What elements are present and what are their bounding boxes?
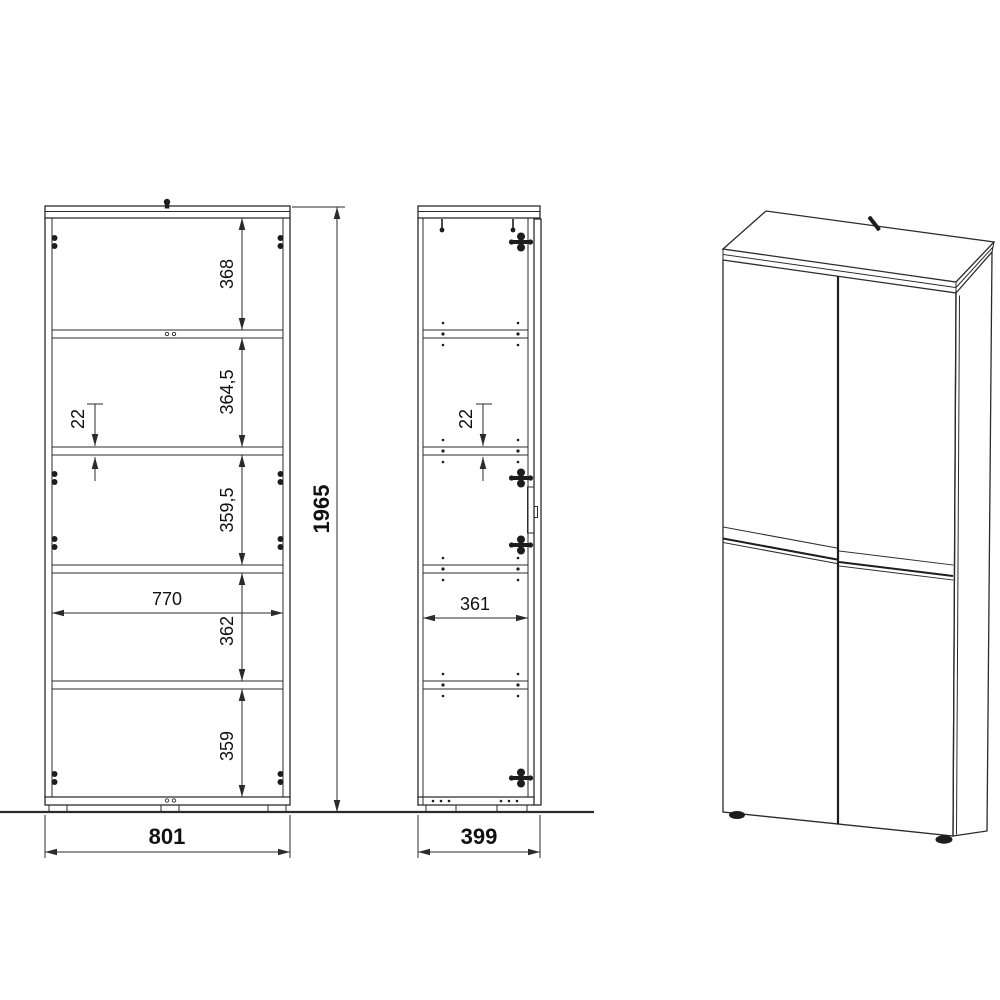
top-panel-thickness-edges: [723, 242, 994, 293]
side-screw-dots: [432, 322, 520, 803]
side-view: 22 361 399: [418, 206, 541, 858]
shelf: [423, 681, 528, 689]
dim-label-compartment-3: 359,5: [217, 487, 237, 532]
foot: [936, 835, 953, 843]
front-shelves: [52, 330, 283, 689]
shelf: [423, 447, 528, 455]
cabinet-technical-drawing: 368 364,5 359,5 362 359 22 770 801: [0, 0, 1000, 1000]
dim-label-overall-height: 1965: [309, 485, 334, 534]
front-dimension-chain: 368 364,5 359,5 362 359: [217, 218, 242, 797]
shelf: [423, 330, 528, 338]
shelf: [52, 447, 283, 455]
front-shelf-thickness-dimension: 22: [68, 404, 103, 481]
dim-label-inner-width: 770: [152, 589, 182, 609]
shelf: [52, 330, 283, 338]
hinge-icon: [509, 233, 533, 252]
dim-label-overall-depth: 399: [461, 824, 498, 849]
side-overall-depth-dimension: 399: [418, 815, 540, 858]
front-view: 368 364,5 359,5 362 359 22 770 801: [45, 199, 345, 858]
shelf: [52, 565, 283, 573]
screw-icon: [440, 219, 445, 232]
dim-label-side-shelf-thickness: 22: [456, 409, 476, 429]
dim-label-overall-width: 801: [149, 824, 186, 849]
technical-drawing-page: 368 364,5 359,5 362 359 22 770 801: [0, 0, 1000, 1000]
side-hinge-icons: [509, 233, 533, 788]
hinge-icon: [509, 536, 533, 555]
front-overall-height-dimension: 1965: [292, 207, 345, 812]
dim-label-compartment-2: 364,5: [217, 369, 237, 414]
front-dowel-holes: [165, 332, 175, 802]
dim-label-compartment-1: 368: [217, 259, 237, 289]
shelf: [423, 565, 528, 573]
hinge-icon: [509, 469, 533, 488]
foot: [729, 811, 745, 819]
dim-label-compartment-4: 362: [217, 616, 237, 646]
door-edge-line: [957, 296, 960, 834]
dim-label-compartment-5: 359: [217, 731, 237, 761]
wall-anchor-fitting-icon: [867, 215, 881, 231]
front-overall-width-dimension: 801: [45, 815, 290, 858]
perspective-view: [723, 211, 994, 844]
side-top-screws: [440, 219, 516, 232]
cabinet-front-face: [723, 260, 956, 836]
dim-label-shelf-thickness: 22: [68, 409, 88, 429]
hinge-icon: [509, 769, 533, 788]
front-carcass-outline: [45, 206, 290, 805]
wall-anchor-fitting-icon: [164, 199, 170, 209]
shelf: [52, 681, 283, 689]
front-hinge-icons: [52, 235, 284, 785]
side-shelves: [423, 330, 528, 689]
front-inner-width-dimension: 770: [52, 589, 283, 613]
side-shelf-thickness-dimension: 22: [456, 404, 492, 481]
door-handle: [528, 487, 538, 533]
side-inner-depth-dimension: 361: [423, 594, 528, 618]
screw-icon: [511, 219, 516, 232]
cabinet-top-face: [723, 211, 994, 282]
dim-label-inner-depth: 361: [460, 594, 490, 614]
